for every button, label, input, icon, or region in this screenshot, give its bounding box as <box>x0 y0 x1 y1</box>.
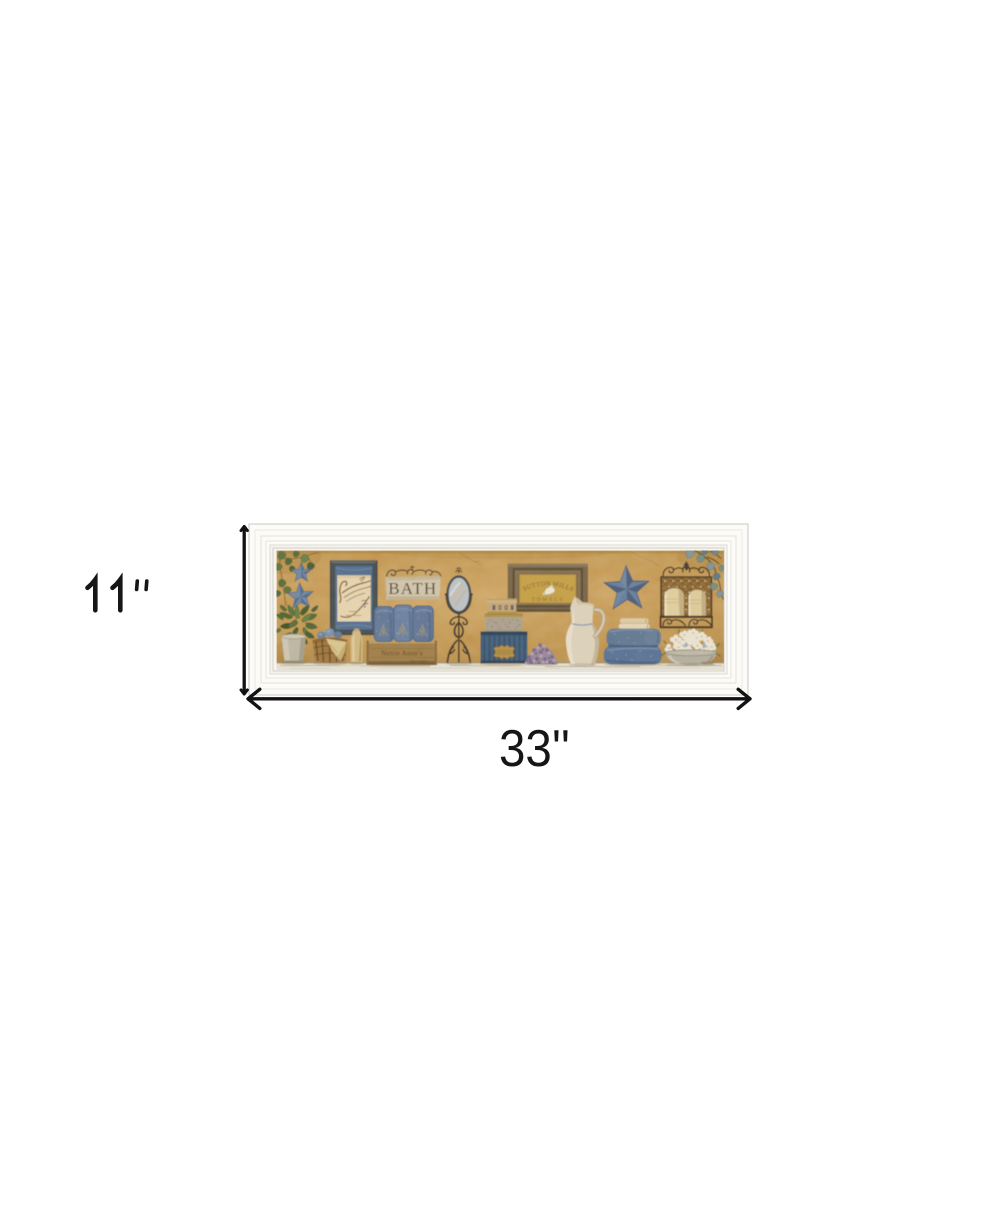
svg-text:33'': 33'' <box>499 720 570 778</box>
